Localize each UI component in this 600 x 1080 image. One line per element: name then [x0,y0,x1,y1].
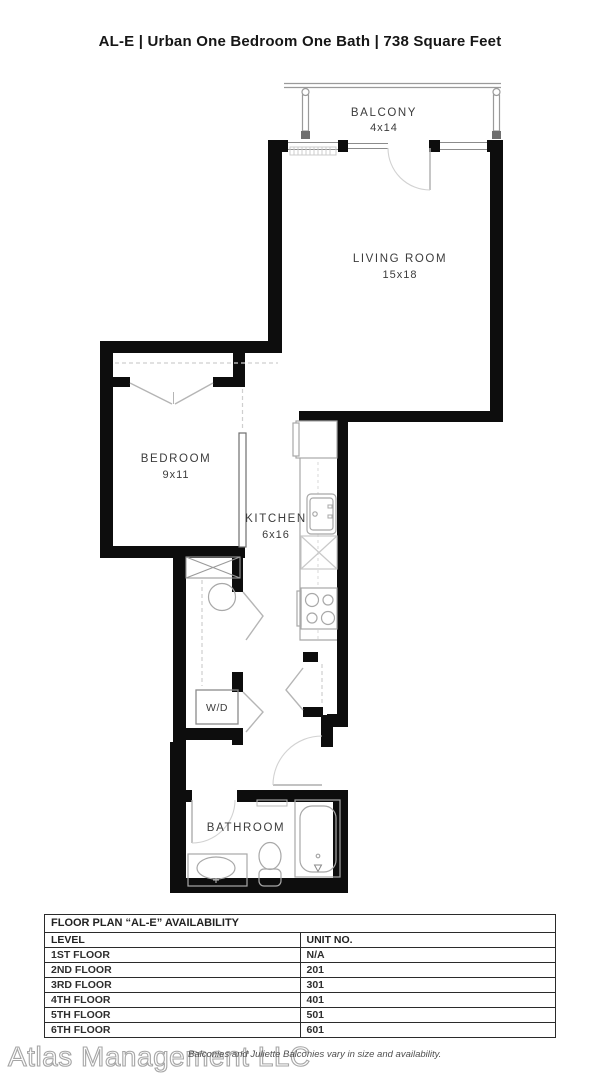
kitchen-dims: 6x16 [262,529,290,541]
cell-level: 6TH FLOOR [45,1023,301,1038]
water-heater [209,584,236,611]
cell-level: 1ST FLOOR [45,948,301,963]
cell-level: 2ND FLOOR [45,963,301,978]
balcony-label: BALCONY [351,107,417,119]
cell-unit: 401 [300,993,556,1008]
availability-table: FLOOR PLAN “AL-E” AVAILABILITY LEVEL UNI… [44,914,556,1038]
floor-plan-page: AL-E | Urban One Bedroom One Bath | 738 … [0,0,600,1080]
chase-box [186,557,240,578]
dishwasher [301,536,337,569]
bedroom-double-doors [130,383,213,404]
windows [288,140,487,155]
table-row: 6TH FLOOR 601 [45,1023,556,1038]
bathroom-fixtures [188,800,340,886]
cell-unit: 301 [300,978,556,993]
cell-unit: 601 [300,1023,556,1038]
room-labels: BALCONY 4x14 LIVING ROOM 15x18 BEDROOM 9… [141,107,447,834]
column-header-level: LEVEL [45,933,301,948]
balcony-door-arc [388,148,430,190]
laundry-accordion-door [243,692,263,732]
washer-dryer-label: W/D [206,702,228,714]
bathroom-label: BATHROOM [207,822,285,834]
table-row: 5TH FLOOR 501 [45,1008,556,1023]
kitchen-fixtures [293,421,337,640]
pantry-accordion-door [286,668,303,710]
refrigerator [293,421,337,458]
kitchen-sink [307,494,336,534]
living-room-label: LIVING ROOM [353,253,447,265]
bedroom-dims: 9x11 [162,469,189,481]
floor-plan-svg: BALCONY 4x14 LIVING ROOM 15x18 BEDROOM 9… [0,0,600,910]
table-row: 4TH FLOOR 401 [45,993,556,1008]
stove [297,588,337,629]
cell-level: 3RD FLOOR [45,978,301,993]
table-row: 2ND FLOOR 201 [45,963,556,978]
column-header-unit-no: UNIT NO. [300,933,556,948]
cell-unit: N/A [300,948,556,963]
table-row: 1ST FLOOR N/A [45,948,556,963]
living-room-dims: 15x18 [383,269,418,281]
cell-unit: 501 [300,1008,556,1023]
dashed-lines [115,363,322,705]
balcony-dims: 4x14 [370,122,398,134]
table-row: 3RD FLOOR 301 [45,978,556,993]
cell-unit: 201 [300,963,556,978]
hall-door-arc [273,736,322,785]
bedroom-label: BEDROOM [141,453,212,465]
availability-table-title: FLOOR PLAN “AL-E” AVAILABILITY [45,915,556,933]
closet-accordion-door [243,592,263,640]
cell-level: 4TH FLOOR [45,993,301,1008]
cell-level: 5TH FLOOR [45,1008,301,1023]
sliding-panel [239,433,246,547]
kitchen-label: KITCHEN [245,513,307,525]
disclaimer: Balconies and Juliette Balconies vary in… [188,1049,441,1060]
